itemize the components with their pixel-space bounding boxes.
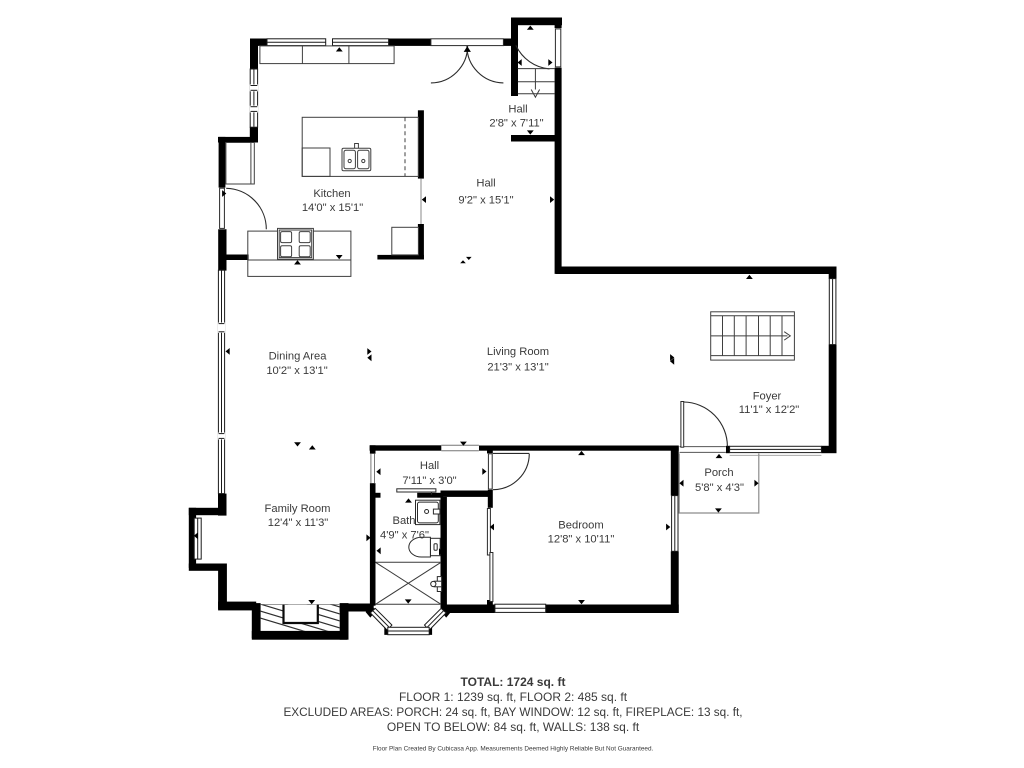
svg-text:21'3" x 13'1": 21'3" x 13'1"	[487, 362, 548, 374]
svg-text:7'11" x 3'0": 7'11" x 3'0"	[402, 475, 456, 487]
svg-text:Hall: Hall	[420, 460, 439, 472]
svg-text:Bedroom: Bedroom	[558, 520, 603, 532]
svg-text:Hall: Hall	[508, 104, 527, 116]
svg-text:4'9" x 7'6": 4'9" x 7'6"	[380, 530, 429, 542]
svg-text:Hall: Hall	[476, 178, 495, 190]
svg-text:Porch: Porch	[704, 467, 733, 479]
svg-text:Family Room: Family Room	[265, 503, 331, 515]
svg-text:14'0" x 15'1": 14'0" x 15'1"	[302, 202, 363, 214]
svg-text:Foyer: Foyer	[753, 391, 782, 403]
svg-text:Living Room: Living Room	[487, 346, 549, 358]
svg-text:EXCLUDED AREAS: PORCH: 24 sq.: EXCLUDED AREAS: PORCH: 24 sq. ft, BAY WI…	[283, 706, 742, 719]
svg-text:OPEN TO BELOW: 84 sq. ft, WALL: OPEN TO BELOW: 84 sq. ft, WALLS: 138 sq.…	[387, 720, 640, 734]
svg-text:Dining Area: Dining Area	[269, 351, 328, 363]
svg-text:Bath: Bath	[392, 515, 415, 527]
svg-text:5'8" x 4'3": 5'8" x 4'3"	[695, 482, 744, 494]
svg-text:2'8" x 7'11": 2'8" x 7'11"	[489, 118, 543, 130]
svg-text:Floor Plan Created By Cubicasa: Floor Plan Created By Cubicasa App. Meas…	[373, 746, 654, 753]
svg-text:Kitchen: Kitchen	[313, 188, 350, 200]
svg-text:12'4" x 11'3": 12'4" x 11'3"	[268, 517, 329, 529]
svg-text:TOTAL: 1724 sq. ft: TOTAL: 1724 sq. ft	[461, 675, 566, 689]
svg-text:FLOOR 1: 1239 sq. ft, FLOOR 2:: FLOOR 1: 1239 sq. ft, FLOOR 2: 485 sq. f…	[399, 690, 628, 704]
svg-text:10'2" x 13'1": 10'2" x 13'1"	[266, 365, 327, 377]
svg-text:9'2" x 15'1": 9'2" x 15'1"	[458, 195, 513, 207]
svg-text:11'1" x 12'2": 11'1" x 12'2"	[739, 404, 800, 416]
svg-text:12'8" x 10'11": 12'8" x 10'11"	[548, 534, 615, 546]
